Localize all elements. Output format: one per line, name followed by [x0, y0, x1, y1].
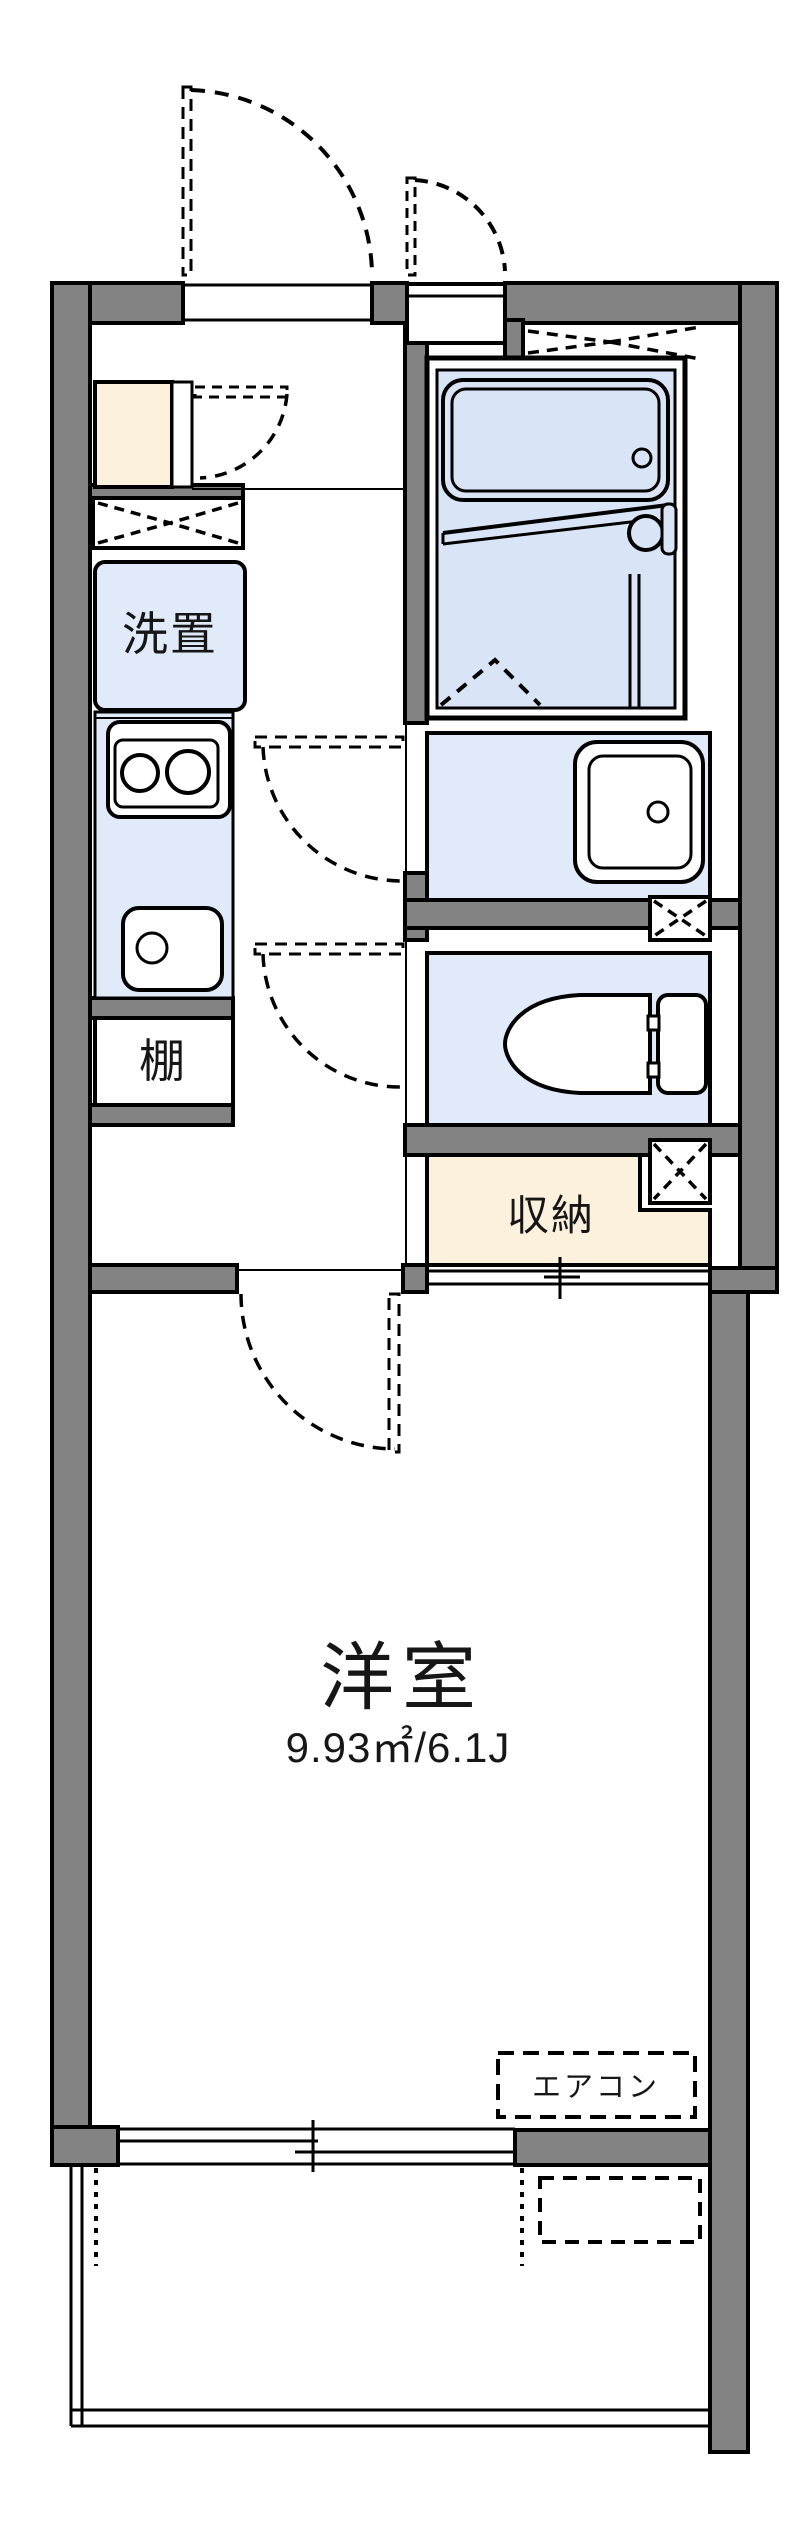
pipe-space-box-1 — [650, 897, 710, 940]
entrance-door-leaf — [183, 87, 191, 275]
entrance-recess — [407, 284, 505, 343]
bath-control-panel — [662, 504, 676, 554]
room-door-leaf — [389, 1294, 399, 1452]
balcony — [71, 2165, 710, 2426]
wall-bottom-right — [515, 2130, 710, 2165]
washroom-door-arc — [263, 747, 403, 881]
wall-corridor-bath — [405, 323, 427, 723]
shelf-label: 棚 — [139, 1038, 187, 1084]
pipe-space-box-2 — [650, 1140, 710, 1203]
wall-band-below-shelf — [90, 1105, 233, 1125]
entry-door-leaf — [195, 387, 287, 397]
wall-right-lower — [710, 1268, 748, 2452]
wall-room-top-left — [90, 1265, 237, 1292]
overhead-cabinet-box — [93, 498, 243, 548]
wall-top-middle — [372, 283, 407, 323]
shoe-cabinet — [95, 382, 192, 487]
wall-top-right — [505, 283, 777, 323]
bath-top-vent — [528, 327, 700, 359]
kitchen-sink-icon — [123, 908, 222, 990]
aircon-label: エアコン — [532, 2074, 660, 2103]
washroom-door-leaf — [255, 737, 403, 747]
toilet-bowl — [505, 995, 650, 1093]
bath-faucet-icon — [629, 516, 663, 550]
western-room-label: 洋室 — [320, 1641, 484, 1715]
entrance-door-arc — [191, 90, 372, 272]
toilet-tank — [658, 995, 706, 1093]
balcony-dashed-box — [540, 2178, 700, 2242]
floor-plan: 洗置 棚 収納 洋室 9.93㎡/6.1J エアコン — [0, 0, 800, 2540]
bathtub-icon — [443, 380, 668, 500]
toilet-door-leaf — [255, 944, 403, 954]
wall-band-sink-shelf — [90, 998, 233, 1018]
outer-door-leaf — [407, 178, 415, 275]
tub-drain-icon — [633, 449, 651, 467]
toilet-icon — [505, 995, 706, 1093]
wall-left — [52, 283, 90, 2165]
room-door-arc — [241, 1294, 395, 1449]
wall-room-top-stub — [403, 1265, 427, 1292]
floor-plan-drawing — [0, 0, 800, 2540]
wall-recess-stub — [505, 320, 523, 360]
wall-right-upper — [740, 283, 777, 1292]
entry-opening-lines — [183, 285, 372, 320]
toilet-door-arc — [263, 954, 403, 1087]
kitchen-stove-icon — [108, 722, 230, 817]
outer-door-arc — [415, 180, 505, 271]
storage-label: 収納 — [507, 1195, 595, 1237]
kitchen-counter — [95, 712, 233, 998]
toilet-room — [427, 953, 710, 1125]
wall-bottom-left-corner — [52, 2127, 118, 2165]
entry-door-arc — [200, 394, 287, 478]
sliding-window — [118, 2120, 515, 2172]
wash-basin-icon — [575, 742, 703, 882]
wall-room-top-right — [710, 1268, 777, 1292]
washer-place-label: 洗置 — [122, 611, 218, 657]
bathroom — [427, 358, 685, 718]
room-area-label: 9.93㎡/6.1J — [286, 1727, 511, 1769]
washroom — [427, 733, 710, 900]
